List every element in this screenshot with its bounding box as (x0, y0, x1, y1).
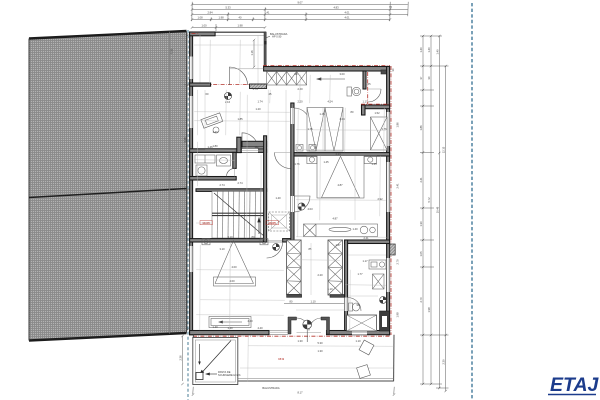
svg-text:1.30: 1.30 (419, 221, 423, 227)
svg-text:1.98: 1.98 (237, 24, 243, 28)
svg-text:ETAJ: ETAJ (550, 374, 600, 396)
svg-text:1.76: 1.76 (307, 127, 313, 131)
svg-text:4.87: 4.87 (335, 243, 341, 247)
svg-text:12.15: 12.15 (442, 146, 446, 153)
svg-text:4.83: 4.83 (333, 6, 339, 10)
svg-text:1.40: 1.40 (419, 47, 423, 53)
svg-text:4.04: 4.04 (339, 117, 345, 121)
svg-text:2.16: 2.16 (225, 100, 231, 104)
svg-text:5.72: 5.72 (427, 197, 431, 203)
svg-text:2.74: 2.74 (237, 181, 243, 185)
svg-text:2.20: 2.20 (297, 87, 303, 91)
svg-text:4.24: 4.24 (327, 100, 333, 104)
svg-text:2.41: 2.41 (396, 183, 400, 189)
svg-text:1.40: 1.40 (275, 196, 281, 200)
svg-text:1.40: 1.40 (212, 130, 218, 134)
svg-text:1.76: 1.76 (381, 127, 387, 131)
svg-text:2.70: 2.70 (396, 259, 400, 265)
svg-text:17.9: 17.9 (278, 357, 284, 361)
svg-text:8.17: 8.17 (297, 391, 303, 395)
svg-text:1.77: 1.77 (357, 272, 363, 276)
svg-text:1.86: 1.86 (396, 122, 400, 128)
svg-text:5.30: 5.30 (317, 341, 323, 345)
svg-text:BALUSTRADA: BALUSTRADA (262, 386, 280, 390)
svg-text:5.33: 5.33 (225, 6, 231, 10)
svg-text:4.01: 4.01 (344, 11, 350, 15)
svg-text:4.00: 4.00 (231, 265, 237, 269)
svg-text:1.10: 1.10 (355, 339, 361, 343)
svg-text:1.20: 1.20 (255, 107, 261, 111)
svg-text:3.10: 3.10 (227, 235, 233, 239)
svg-text:4.87: 4.87 (332, 217, 338, 221)
svg-text:2.92: 2.92 (377, 197, 383, 201)
svg-text:4.40: 4.40 (247, 319, 253, 323)
svg-text:1.80: 1.80 (212, 144, 218, 148)
svg-text:1.10: 1.10 (310, 300, 316, 304)
svg-text:1.98: 1.98 (218, 16, 224, 20)
svg-text:1.10: 1.10 (327, 287, 333, 291)
svg-text:1.08: 1.08 (197, 16, 203, 20)
svg-text:1.16: 1.16 (250, 50, 254, 56)
svg-text:1.05: 1.05 (419, 251, 423, 257)
svg-text:4.40: 4.40 (257, 326, 263, 330)
svg-text:1.40: 1.40 (227, 326, 233, 330)
svg-text:1.40: 1.40 (427, 47, 431, 53)
svg-text:HP 0.90: HP 0.90 (272, 35, 282, 39)
svg-text:1.40: 1.40 (435, 49, 439, 55)
svg-text:4.03: 4.03 (307, 207, 313, 211)
svg-text:2.41: 2.41 (419, 177, 423, 183)
svg-text:1.74: 1.74 (252, 87, 258, 91)
svg-text:2.36: 2.36 (179, 355, 183, 361)
svg-text:1.86: 1.86 (419, 125, 423, 131)
svg-text:1.76: 1.76 (294, 162, 300, 166)
svg-text:1.85: 1.85 (237, 117, 243, 121)
svg-text:3.10: 3.10 (219, 247, 225, 251)
svg-text:13.05: 13.05 (268, 221, 276, 225)
svg-text:1.30: 1.30 (317, 349, 323, 353)
svg-text:2.74: 2.74 (219, 183, 225, 187)
svg-text:1.98: 1.98 (396, 312, 400, 318)
svg-text:1.45: 1.45 (319, 112, 325, 116)
svg-text:1.17: 1.17 (362, 259, 368, 263)
svg-text:1.40: 1.40 (212, 325, 218, 329)
svg-text:2.30: 2.30 (442, 359, 446, 365)
svg-text:1.17: 1.17 (362, 100, 368, 104)
svg-text:10.46: 10.46 (435, 206, 439, 213)
svg-text:2.84: 2.84 (207, 11, 213, 15)
svg-text:2.20: 2.20 (297, 100, 303, 104)
svg-text:1.30: 1.30 (297, 339, 303, 343)
svg-text:3.00: 3.00 (339, 72, 345, 76)
svg-text:4.00: 4.00 (229, 279, 235, 283)
svg-text:4.87: 4.87 (337, 183, 343, 187)
svg-text:2.20: 2.20 (317, 273, 323, 277)
svg-text:4.01: 4.01 (344, 16, 350, 20)
svg-text:SCURGERE H=2%: SCURGERE H=2% (218, 373, 241, 377)
svg-text:1.65: 1.65 (365, 82, 371, 86)
svg-text:1.45: 1.45 (371, 162, 377, 166)
svg-text:3.16: 3.16 (183, 137, 187, 143)
svg-text:2.41: 2.41 (363, 236, 369, 240)
svg-text:9.07: 9.07 (297, 1, 303, 5)
svg-text:2.70: 2.70 (419, 297, 423, 303)
svg-text:1.98: 1.98 (427, 307, 431, 313)
svg-text:1.46: 1.46 (207, 145, 213, 149)
svg-text:1.74: 1.74 (257, 100, 263, 104)
svg-text:1.40: 1.40 (352, 227, 358, 231)
svg-text:1.52: 1.52 (374, 111, 380, 115)
svg-text:4.24: 4.24 (335, 152, 341, 156)
svg-text:1.00: 1.00 (201, 24, 207, 28)
svg-text:1.45: 1.45 (323, 160, 329, 164)
